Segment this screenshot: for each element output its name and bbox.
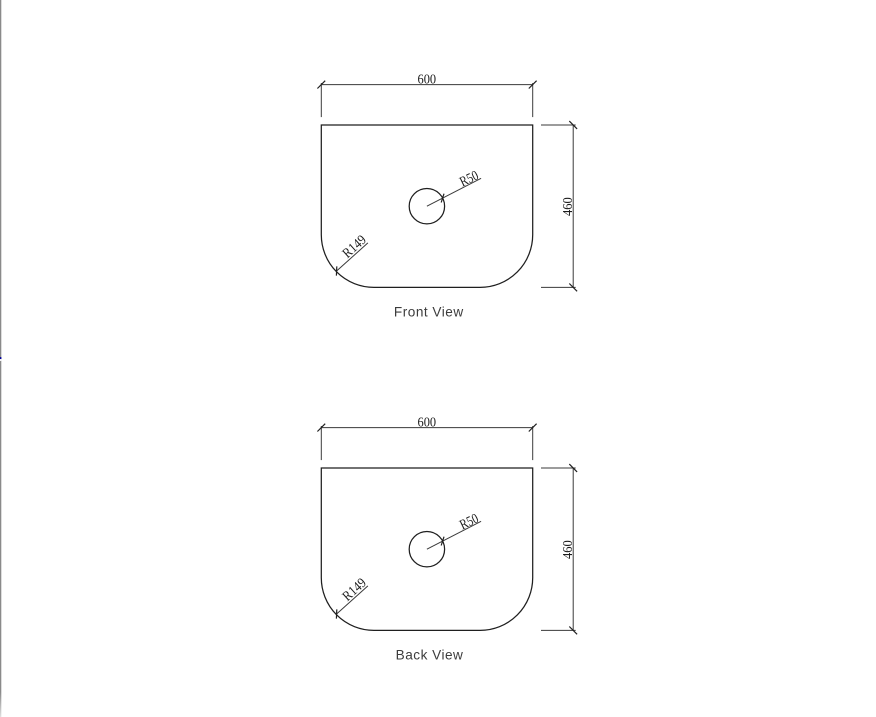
svg-text:Front View: Front View xyxy=(394,304,464,319)
svg-text:Back View: Back View xyxy=(396,647,464,662)
